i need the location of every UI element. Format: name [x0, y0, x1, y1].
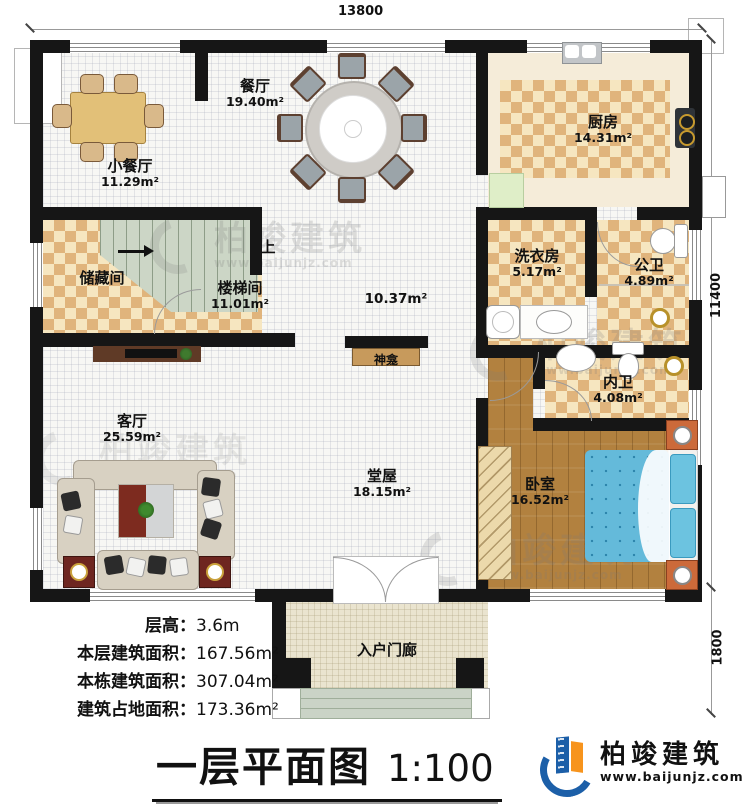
shower-head-icon — [664, 356, 684, 376]
bed-pillow — [670, 508, 696, 558]
rosette-icon — [70, 563, 88, 581]
room-label-dining: 餐厅 19.40m² — [226, 78, 284, 109]
plant-icon — [138, 502, 154, 518]
sink-basin — [565, 45, 579, 58]
chair — [401, 114, 427, 142]
table-center — [344, 120, 362, 138]
room-label-ensuite: 内卫 4.08m² — [593, 374, 642, 405]
logo-building-icon — [556, 736, 569, 773]
wardrobe — [478, 446, 512, 580]
window — [70, 40, 180, 53]
room-label-stairwell: 楼梯间 11.01m² — [211, 280, 269, 311]
porch-steps — [300, 688, 472, 719]
room-label-kitchen: 厨房 14.31m² — [574, 114, 632, 145]
chair — [80, 74, 104, 94]
window — [689, 230, 702, 300]
company-url: www.baijunjz.com — [600, 769, 744, 784]
dimension-right-lower: 1800 — [711, 629, 726, 665]
dimension-line-top — [30, 29, 702, 30]
wall — [637, 207, 702, 220]
burner-icon — [679, 130, 695, 146]
toilet-icon — [650, 228, 676, 254]
pillow — [63, 515, 84, 536]
pillow — [125, 556, 146, 577]
stair-direction-line — [118, 250, 144, 253]
chair — [338, 53, 366, 79]
room-label-bedroom: 卧室 16.52m² — [511, 476, 569, 507]
chair — [277, 114, 303, 142]
floor-plan-canvas: 13800 11400 1800 — [0, 0, 750, 807]
pillow — [104, 555, 125, 576]
wall — [30, 207, 262, 220]
window — [30, 508, 43, 570]
dining-table-small — [70, 92, 146, 144]
porch-column — [456, 658, 484, 688]
window — [30, 243, 43, 307]
room-label-hall: 堂屋 18.15m² — [353, 468, 411, 499]
stairs-up-label: 上 — [260, 238, 275, 256]
chair — [144, 104, 164, 128]
dimension-top: 13800 — [338, 4, 383, 19]
company-name: 柏竣建筑 — [600, 742, 744, 769]
wall — [195, 53, 208, 101]
dimension-right-upper: 11400 — [709, 273, 724, 318]
shower-head-icon — [650, 308, 670, 328]
lamp-icon — [673, 426, 692, 445]
room-label-storage: 储藏间 — [79, 270, 124, 287]
logo-building-icon — [571, 741, 583, 773]
pillow — [60, 490, 81, 511]
shrine-label: 神龛 — [374, 353, 398, 367]
toilet-tank — [674, 224, 688, 258]
porch-side-pad — [470, 688, 490, 719]
room-label-living: 客厅 25.59m² — [103, 413, 161, 444]
window — [90, 589, 255, 602]
info-row: 本层建筑面积：167.56m² — [28, 640, 296, 668]
wall — [585, 220, 597, 297]
company-logo: 柏竣建筑 www.baijunjz.com — [540, 735, 744, 791]
lamp-icon — [673, 566, 692, 585]
plant-icon — [180, 348, 192, 360]
stair-arrow-icon — [144, 245, 154, 257]
building-info: 层高：3.6m 本层建筑面积：167.56m² 本栋建筑面积：307.04m² … — [28, 612, 296, 724]
sink-basin — [582, 45, 596, 58]
room-label-laundry: 洗衣房 5.17m² — [512, 248, 561, 279]
wall — [476, 53, 488, 175]
laundry-sink — [536, 310, 572, 334]
info-row: 层高：3.6m — [28, 612, 296, 640]
pillow — [147, 555, 167, 575]
room-label-porch: 入户门廊 — [357, 642, 417, 659]
window — [327, 40, 445, 53]
bed-pillow — [670, 454, 696, 504]
bed-sheet — [638, 450, 670, 562]
info-row: 建筑占地面积：173.36m² — [28, 696, 296, 724]
rosette-icon — [206, 563, 224, 581]
wall — [30, 333, 295, 347]
dimension-tick — [25, 23, 35, 33]
burner-icon — [679, 114, 695, 130]
washer-drum — [492, 311, 514, 333]
window — [530, 589, 665, 602]
shrine-shelf: 神龛 — [352, 348, 420, 366]
kitchen-cabinet — [489, 173, 524, 208]
ensuite-sink — [556, 344, 596, 372]
pillow — [201, 477, 221, 497]
drawing-title: 一层平面图 1:100 — [152, 733, 502, 802]
page-title: 一层平面图 — [156, 733, 371, 793]
room-label-small-dining: 小餐厅 11.29m² — [101, 158, 159, 189]
drawing-scale: 1:100 — [387, 747, 494, 790]
tv-icon — [125, 349, 177, 358]
chair — [114, 74, 138, 94]
info-row: 本栋建筑面积：307.04m² — [28, 668, 296, 696]
area-label-open-hall: 10.37m² — [365, 292, 428, 307]
pillow — [169, 557, 189, 577]
kitchen-side-door — [702, 176, 726, 218]
chair — [52, 104, 72, 128]
chair — [338, 177, 366, 203]
wall — [345, 336, 428, 348]
wall — [476, 207, 597, 220]
room-label-public-bath: 公卫 4.89m² — [624, 257, 673, 288]
company-logo-icon — [540, 735, 594, 791]
